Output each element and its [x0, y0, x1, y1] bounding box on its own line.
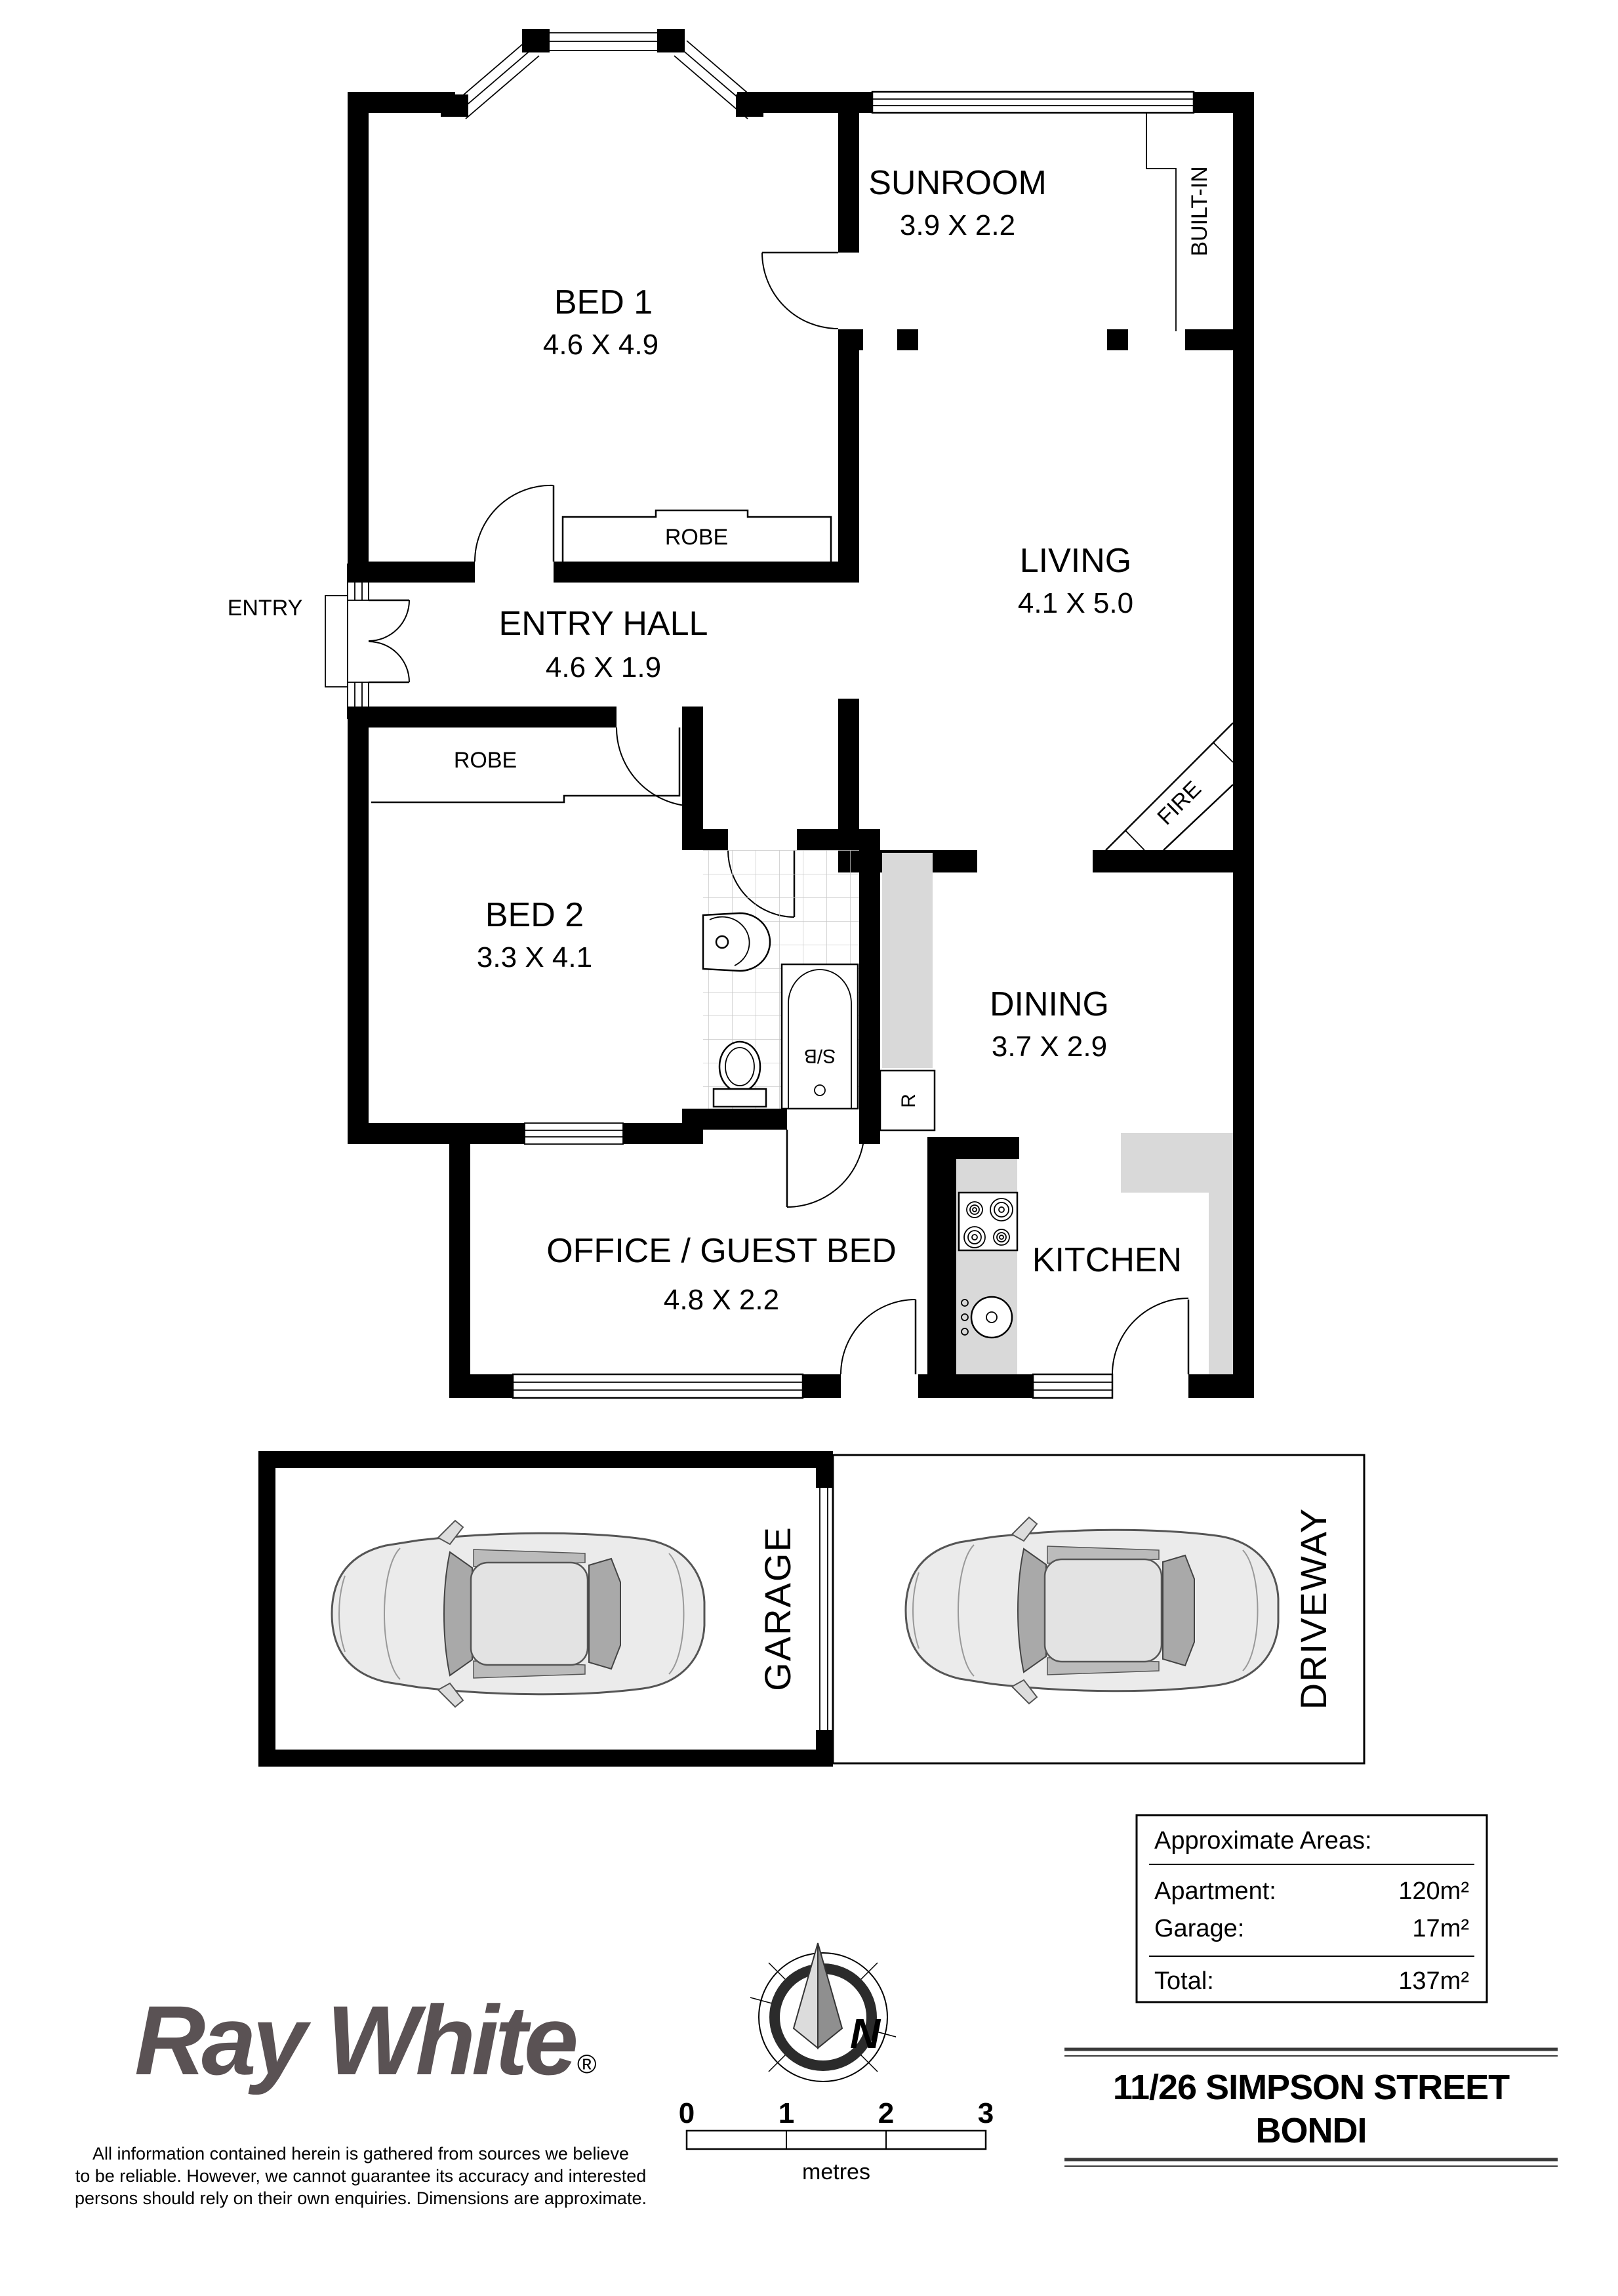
pantry-counter — [882, 853, 933, 1068]
room-label-entry-hall: ENTRY HALL — [499, 605, 708, 643]
scale-unit-label: metres — [802, 2160, 870, 2184]
room-label-dining: DINING — [990, 985, 1109, 1023]
garage-label: GARAGE — [757, 1526, 798, 1691]
disclaimer: All information contained herein is gath… — [75, 2144, 647, 2208]
robe-bed2-label: ROBE — [454, 748, 517, 773]
robe-bed1-label: ROBE — [665, 525, 728, 550]
areas-row-apartment-value: 120m² — [1398, 1877, 1469, 1905]
room-label-bed2: BED 2 — [485, 896, 584, 934]
fridge: R — [880, 1071, 935, 1130]
areas-table: Approximate Areas: Apartment: 120m² Gara… — [1137, 1815, 1487, 2002]
bathroom-sink — [703, 913, 770, 971]
robe-bed2: ROBE — [371, 728, 679, 802]
scale-tick-3: 3 — [978, 2097, 994, 2129]
stove — [959, 1193, 1017, 1250]
compass-n-label: N — [850, 2010, 881, 2057]
fridge-label: R — [898, 1094, 920, 1108]
areas-title: Approximate Areas: — [1154, 1827, 1372, 1855]
room-dims-entry-hall: 4.6 X 1.9 — [546, 651, 661, 684]
apartment-walls — [348, 92, 1254, 1398]
garage: GARAGE — [258, 1451, 833, 1767]
bathroom: S/B — [703, 850, 859, 1109]
driveway: DRIVEWAY — [833, 1455, 1364, 1763]
built-in-label: BUILT-IN — [1187, 166, 1212, 256]
areas-row-apartment-label: Apartment: — [1154, 1877, 1276, 1905]
room-label-bed1: BED 1 — [554, 283, 653, 321]
disclaimer-line3: persons should rely on their own enquiri… — [75, 2188, 647, 2208]
floorplan-page: BUILT-IN ROBE ROBE FIRE — [0, 0, 1618, 2296]
compass-north-icon: N — [750, 1943, 896, 2081]
driveway-label: DRIVEWAY — [1293, 1507, 1334, 1710]
scale-tick-1: 1 — [779, 2097, 794, 2129]
areas-total-label: Total: — [1154, 1967, 1214, 1995]
floorplan-drawing: BUILT-IN ROBE ROBE FIRE — [0, 0, 1618, 2296]
address-line2: BONDI — [1256, 2111, 1367, 2150]
robe-bed1: ROBE — [563, 510, 831, 562]
room-dims-office: 4.8 X 2.2 — [664, 1284, 779, 1316]
sink-tap — [716, 936, 728, 948]
toilet-cistern — [714, 1089, 766, 1107]
room-dims-dining: 3.7 X 2.9 — [992, 1031, 1107, 1063]
room-label-living: LIVING — [1020, 542, 1132, 580]
disclaimer-line1: All information contained herein is gath… — [92, 2144, 629, 2163]
areas-total-value: 137m² — [1398, 1967, 1469, 1995]
scale-tick-2: 2 — [878, 2097, 894, 2129]
room-label-office: OFFICE / GUEST BED — [546, 1232, 897, 1270]
scale-bar: 0 1 2 3 metres — [679, 2097, 994, 2184]
bay-window — [441, 29, 763, 119]
address-line1: 11/26 SIMPSON STREET — [1113, 2068, 1510, 2107]
room-dims-bed1: 4.6 X 4.9 — [543, 329, 658, 361]
built-in-robe: BUILT-IN — [1146, 113, 1212, 331]
bath-label: S/B — [804, 1045, 836, 1067]
areas-row-garage-value: 17m² — [1412, 1915, 1469, 1942]
room-dims-bed2: 3.3 X 4.1 — [477, 941, 592, 974]
garage-car-icon — [332, 1521, 704, 1707]
entry-label: ENTRY — [228, 596, 303, 621]
scale-tick-0: 0 — [679, 2097, 695, 2129]
room-label-sunroom: SUNROOM — [868, 164, 1047, 202]
room-dims-sunroom: 3.9 X 2.2 — [900, 209, 1015, 241]
driveway-car-icon — [906, 1517, 1278, 1704]
fireplace: FIRE — [1106, 723, 1233, 850]
ray-white-logo-text: Ray White — [134, 1985, 576, 2095]
areas-row-garage-label: Garage: — [1154, 1915, 1244, 1942]
registered-mark-icon: ® — [577, 2050, 596, 2079]
room-label-kitchen: KITCHEN — [1032, 1241, 1182, 1279]
fire-label: FIRE — [1152, 776, 1206, 830]
address-block: 11/26 SIMPSON STREET BONDI — [1064, 2049, 1558, 2166]
ray-white-logo: Ray White ® — [134, 1985, 596, 2095]
room-dims-living: 4.1 X 5.0 — [1018, 587, 1133, 619]
disclaimer-line2: to be reliable. However, we cannot guara… — [75, 2166, 647, 2186]
